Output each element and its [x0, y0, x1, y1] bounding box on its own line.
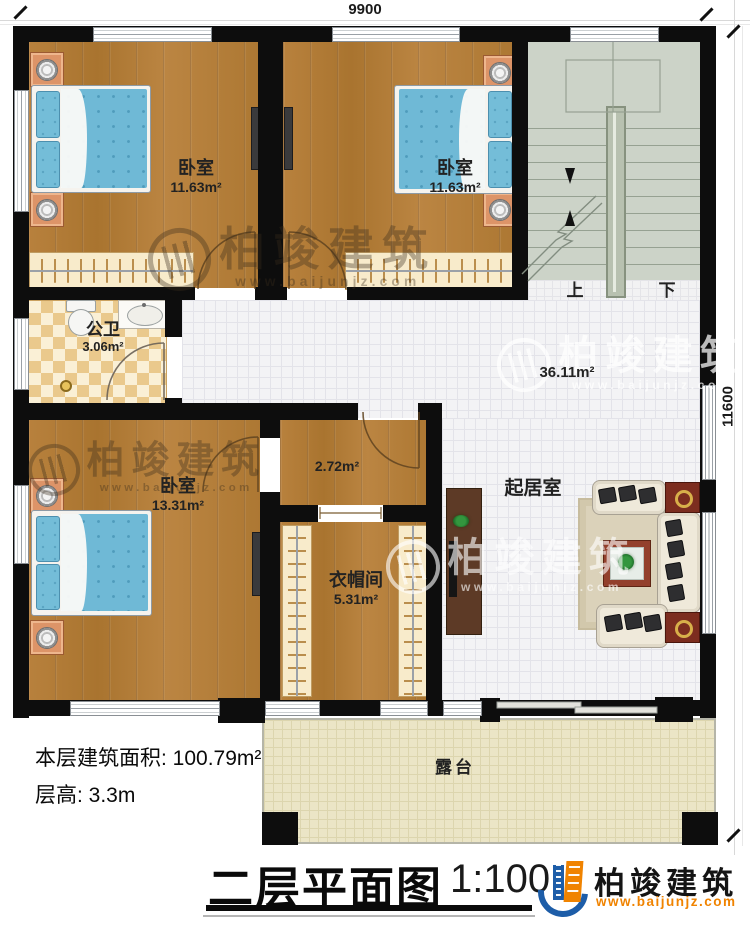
sofa-pillow [667, 584, 686, 603]
wall-partition [347, 287, 528, 300]
sofa-pillow [598, 487, 617, 505]
room-name: 衣帽间 [306, 570, 406, 591]
wall-step [218, 698, 265, 723]
tv-cabinet [446, 488, 482, 635]
bathroom-label: 公卫 3.06m² [63, 320, 143, 354]
nightstand [30, 478, 64, 513]
terrace-label: 露台 [418, 758, 492, 778]
nightstand [30, 620, 64, 655]
window [332, 27, 460, 42]
closet-label: 衣帽间 5.31m² [306, 570, 406, 607]
room-name: 露台 [418, 758, 492, 778]
wall-bedroom3-right [260, 420, 280, 438]
logo-building-blue [553, 865, 564, 900]
closet-opening [320, 507, 381, 519]
stair-stringer [606, 106, 626, 298]
wall-closet-right [426, 403, 442, 700]
wall-partition [258, 26, 283, 288]
hallway-label: 2.72m² [300, 458, 374, 474]
faucet [142, 303, 146, 307]
sofa-pillow [665, 519, 684, 538]
room-area: 11.63m² [405, 179, 505, 195]
nightstand [30, 192, 64, 227]
tv [449, 541, 457, 597]
room-name: 卧室 [128, 476, 228, 497]
pillow [36, 516, 60, 562]
stairs-up-label: 上 [563, 281, 587, 301]
terrace-floor [262, 718, 716, 844]
wall-bedroom3-right [260, 492, 280, 700]
blanket [61, 89, 87, 188]
room-name: 卧室 [405, 158, 505, 179]
terrace-column [262, 812, 298, 845]
wall-closet-top [280, 505, 318, 522]
room-area: 36.11m² [527, 364, 607, 381]
living-room-name-label: 起居室 [491, 478, 575, 500]
wall-partition [255, 287, 287, 300]
wardrobe [398, 525, 428, 697]
title-underline-thin [203, 915, 535, 917]
plant-decor [453, 515, 469, 527]
floor-height-text: 层高: 3.3m [35, 779, 135, 809]
blanket [61, 514, 87, 611]
room-name: 公卫 [63, 320, 143, 340]
bed [31, 510, 152, 616]
top-dimension-line-2 [0, 24, 750, 25]
sofa-pillow [604, 614, 624, 633]
wall-partition [512, 26, 528, 288]
window [443, 701, 482, 716]
pillow [36, 91, 60, 138]
corridor-floor [182, 300, 700, 418]
window [14, 485, 29, 564]
end-table [665, 482, 700, 513]
pillow [488, 91, 512, 138]
floor-plan-canvas: 9900 11600 [0, 0, 750, 932]
window [14, 318, 29, 390]
room-name: 起居室 [491, 478, 575, 500]
room-area: 3.06m² [63, 340, 143, 355]
window [702, 512, 716, 634]
wardrobe [345, 252, 514, 290]
sofa-right [657, 512, 701, 613]
title-underline [206, 905, 532, 911]
logo-building-orange [564, 861, 584, 902]
bedroom-top-left-label: 卧室 11.63m² [146, 158, 246, 195]
wall-step [480, 698, 500, 722]
window [93, 27, 212, 42]
pillow [36, 564, 60, 610]
room-area: 11.63m² [146, 179, 246, 195]
plant [618, 554, 634, 570]
end-table [665, 612, 700, 643]
window [570, 27, 659, 42]
living-room-area-label: 36.11m² [527, 364, 607, 381]
sofa-pillow [624, 612, 644, 631]
window [70, 701, 220, 716]
floor-area-text: 本层建筑面积: 100.79m² [35, 742, 261, 772]
room-area: 5.31m² [306, 591, 406, 607]
brand-website: www.baijunjz.com [596, 894, 737, 909]
bedroom-top-middle-label: 卧室 11.63m² [405, 158, 505, 195]
room-name: 卧室 [146, 158, 246, 179]
sofa-pillow [618, 485, 637, 503]
terrace-column [682, 812, 718, 845]
room-area: 13.31m² [128, 497, 228, 513]
sofa-pillow [665, 562, 684, 581]
room-area: 2.72m² [300, 458, 374, 474]
wall-bathroom-right [165, 300, 182, 337]
window [702, 385, 716, 480]
stairs-down-label: 下 [655, 281, 679, 301]
pillow [36, 141, 60, 188]
sofa-bottom [596, 604, 668, 648]
floor-drain [60, 380, 72, 392]
nightstand [30, 52, 64, 87]
window [14, 90, 29, 212]
window [265, 701, 320, 716]
brand-logo-icon [538, 858, 588, 910]
wall-partition [13, 287, 195, 300]
wall-step [655, 697, 693, 722]
tv-panel [284, 107, 293, 170]
wardrobe [282, 525, 312, 697]
wall-closet-top [383, 505, 426, 522]
sofa-top [592, 480, 666, 515]
plan-scale: 1:100 [450, 857, 550, 902]
wall-corridor-bottom [13, 403, 358, 420]
stairs-down-text: 下 [655, 281, 679, 301]
bedroom-bottom-left-label: 卧室 13.31m² [128, 476, 228, 513]
top-dimension-line [0, 20, 750, 21]
wardrobe [29, 252, 194, 290]
dimension-tick [13, 5, 27, 19]
top-dimension-label: 9900 [330, 1, 400, 18]
sofa-pillow [638, 487, 657, 505]
right-dimension-line-2 [742, 26, 743, 846]
right-dimension-label: 11600 [720, 367, 737, 447]
stairs-up-text: 上 [563, 281, 587, 301]
bed [31, 85, 151, 193]
window [380, 701, 428, 716]
sofa-pillow [643, 614, 663, 633]
sofa-pillow [667, 540, 686, 559]
